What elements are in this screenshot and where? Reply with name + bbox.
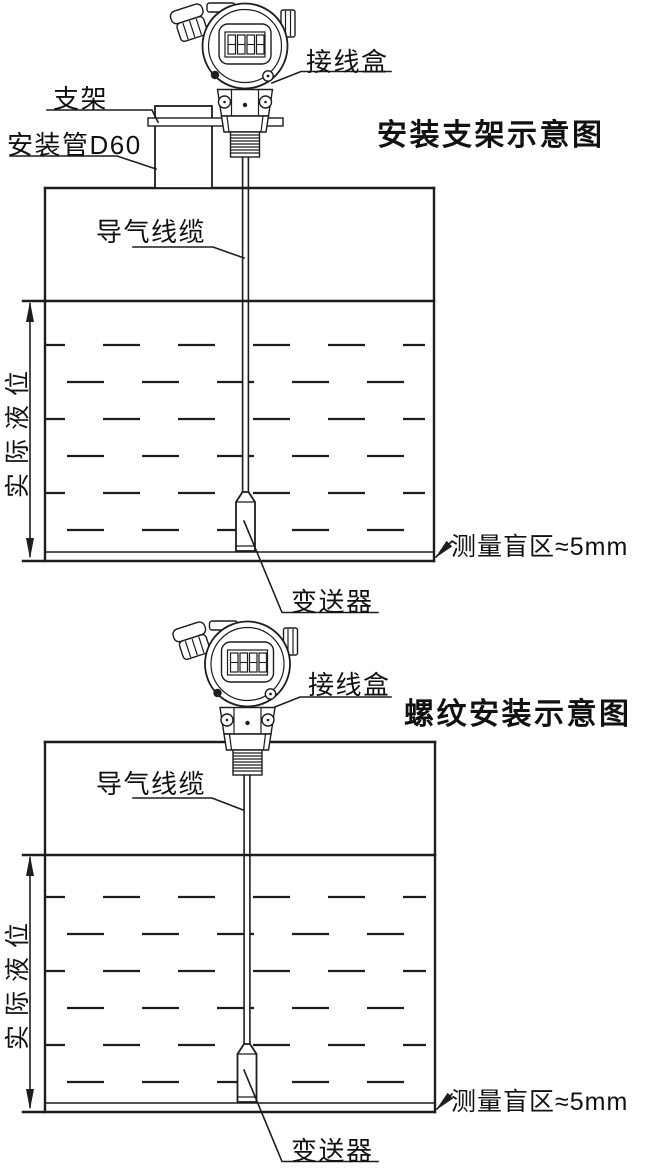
top-diagram-title: 安装支架示意图 [377,110,605,154]
air-guide-cable [242,155,249,495]
top-bracket-label: 支架 [53,79,108,116]
liquid-dashes [45,897,426,1082]
bottom-transmitter-label: 变送器 [291,1131,374,1168]
tank [23,188,434,561]
top-junction-box-label: 接线盒 [306,42,389,79]
bottom-air-cable-label: 导气线缆 [96,764,206,801]
air-guide-cable [244,773,251,1046]
installation-diagram-page: 安装支架示意图 接线盒 支架 安装管D60 导气线缆 实际液位 测量盲区≈5mm… [0,0,650,1171]
top-air-cable-label: 导气线缆 [96,212,206,249]
top-transmitter-label: 变送器 [291,582,374,619]
top-blind-zone-label: 测量盲区≈5mm [451,527,628,563]
transmitter-head [172,621,298,775]
blind-zone-arrow [436,541,452,557]
top-actual-level-label: 实际液位 [0,362,34,498]
top-mounting-pipe-label: 安装管D60 [7,125,142,162]
bottom-diagram-title: 螺纹安装示意图 [404,689,632,733]
tank [23,742,435,1112]
bottom-junction-box-label: 接线盒 [308,665,391,702]
bottom-actual-level-label: 实际液位 [0,914,34,1050]
blind-zone-arrow [437,1094,452,1109]
bottom-blind-zone-label: 测量盲区≈5mm [451,1082,628,1118]
liquid-dashes [45,345,425,530]
